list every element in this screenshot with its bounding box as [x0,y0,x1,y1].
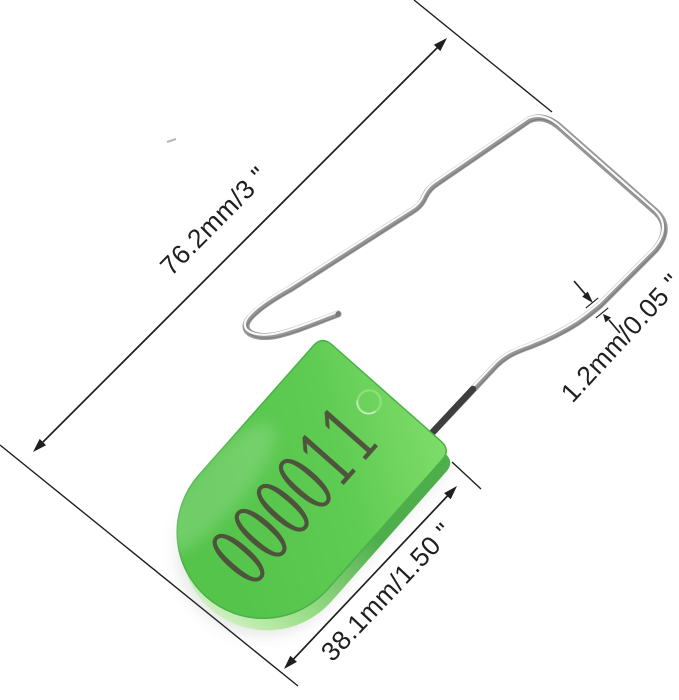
photo-background [0,0,679,700]
wire-open-tip [335,311,340,316]
product-image-page: { "image": { "type": "product-dimension-… [0,0,679,700]
seal-dimension-diagram: 000011 76.2mm/3 " 38.1mm/1.50 " 1.2mm/0.… [0,0,679,700]
product-image: 000011 76.2mm/3 " 38.1mm/1.50 " 1.2mm/0.… [0,0,679,700]
